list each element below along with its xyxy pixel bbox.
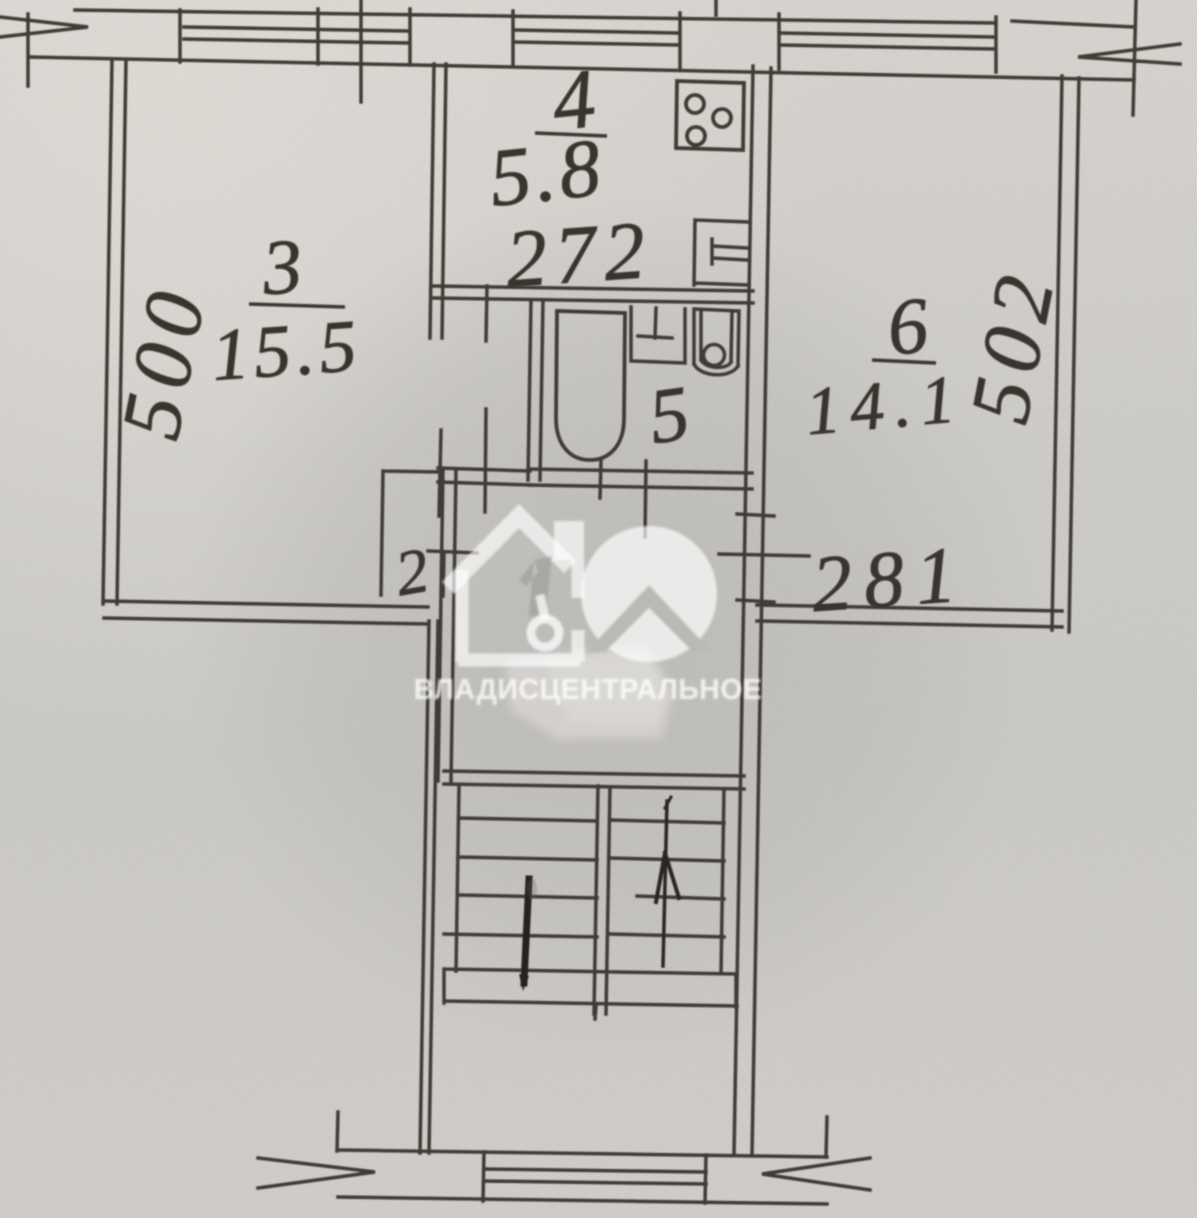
svg-text:6: 6 (884, 281, 932, 372)
svg-text:3: 3 (259, 222, 305, 312)
svg-text:272: 272 (503, 204, 656, 305)
svg-text:281: 281 (809, 530, 971, 629)
svg-text:14.1: 14.1 (803, 360, 968, 450)
svg-text:15.5: 15.5 (209, 305, 364, 397)
svg-text:ВЛАДИСЦЕНТРАЛЬНОЕ: ВЛАДИСЦЕНТРАЛЬНОЕ (414, 674, 763, 706)
